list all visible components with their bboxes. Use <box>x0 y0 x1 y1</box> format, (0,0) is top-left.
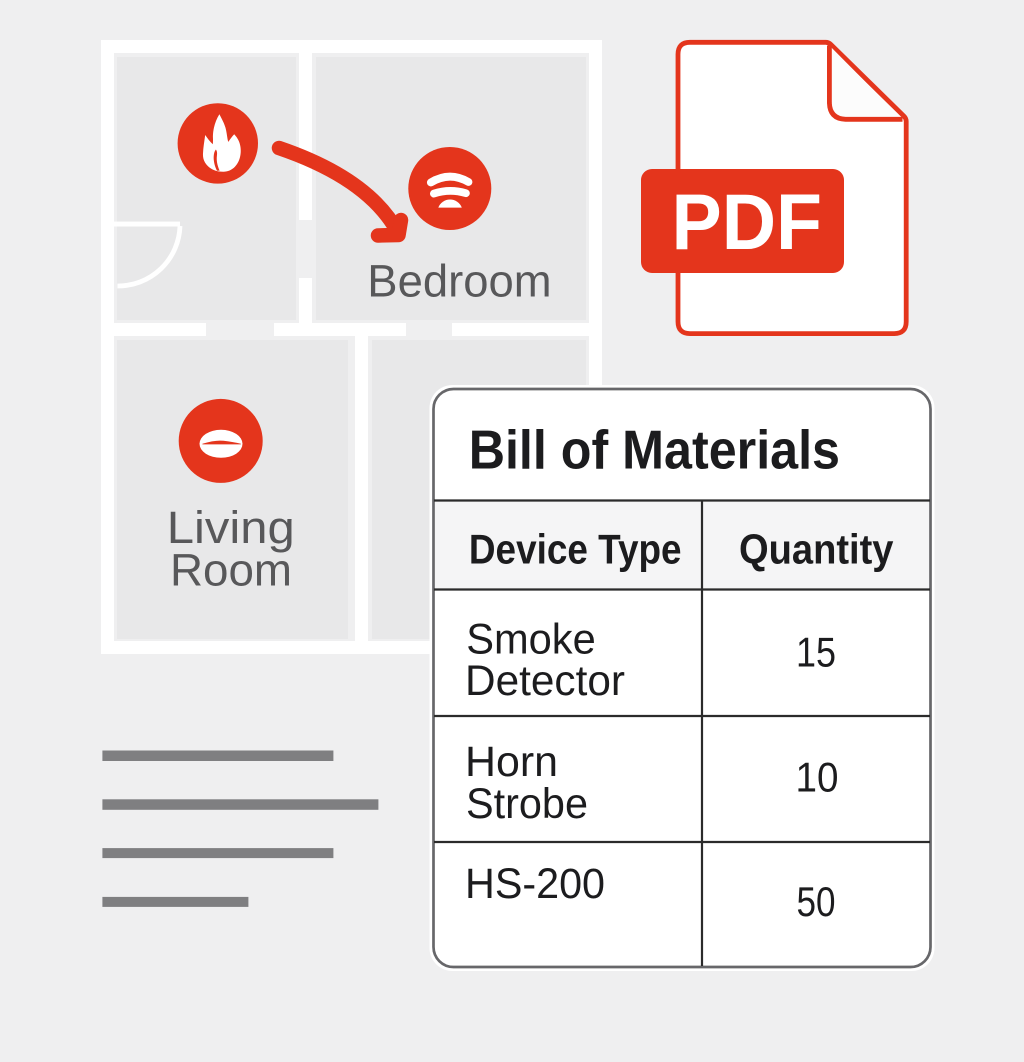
svg-text:Device Type: Device Type <box>469 525 682 572</box>
svg-text:Strobe: Strobe <box>466 780 588 828</box>
svg-text:Bill of Materials: Bill of Materials <box>469 419 840 481</box>
svg-text:Quantity: Quantity <box>739 525 894 572</box>
svg-text:10: 10 <box>796 753 839 800</box>
svg-text:Room: Room <box>170 545 292 596</box>
svg-text:15: 15 <box>796 629 836 676</box>
svg-text:PDF: PDF <box>672 177 823 266</box>
svg-text:Detector: Detector <box>465 657 625 705</box>
svg-text:Bedroom: Bedroom <box>367 256 551 307</box>
svg-text:HS-200: HS-200 <box>465 860 605 908</box>
svg-text:50: 50 <box>797 878 836 925</box>
